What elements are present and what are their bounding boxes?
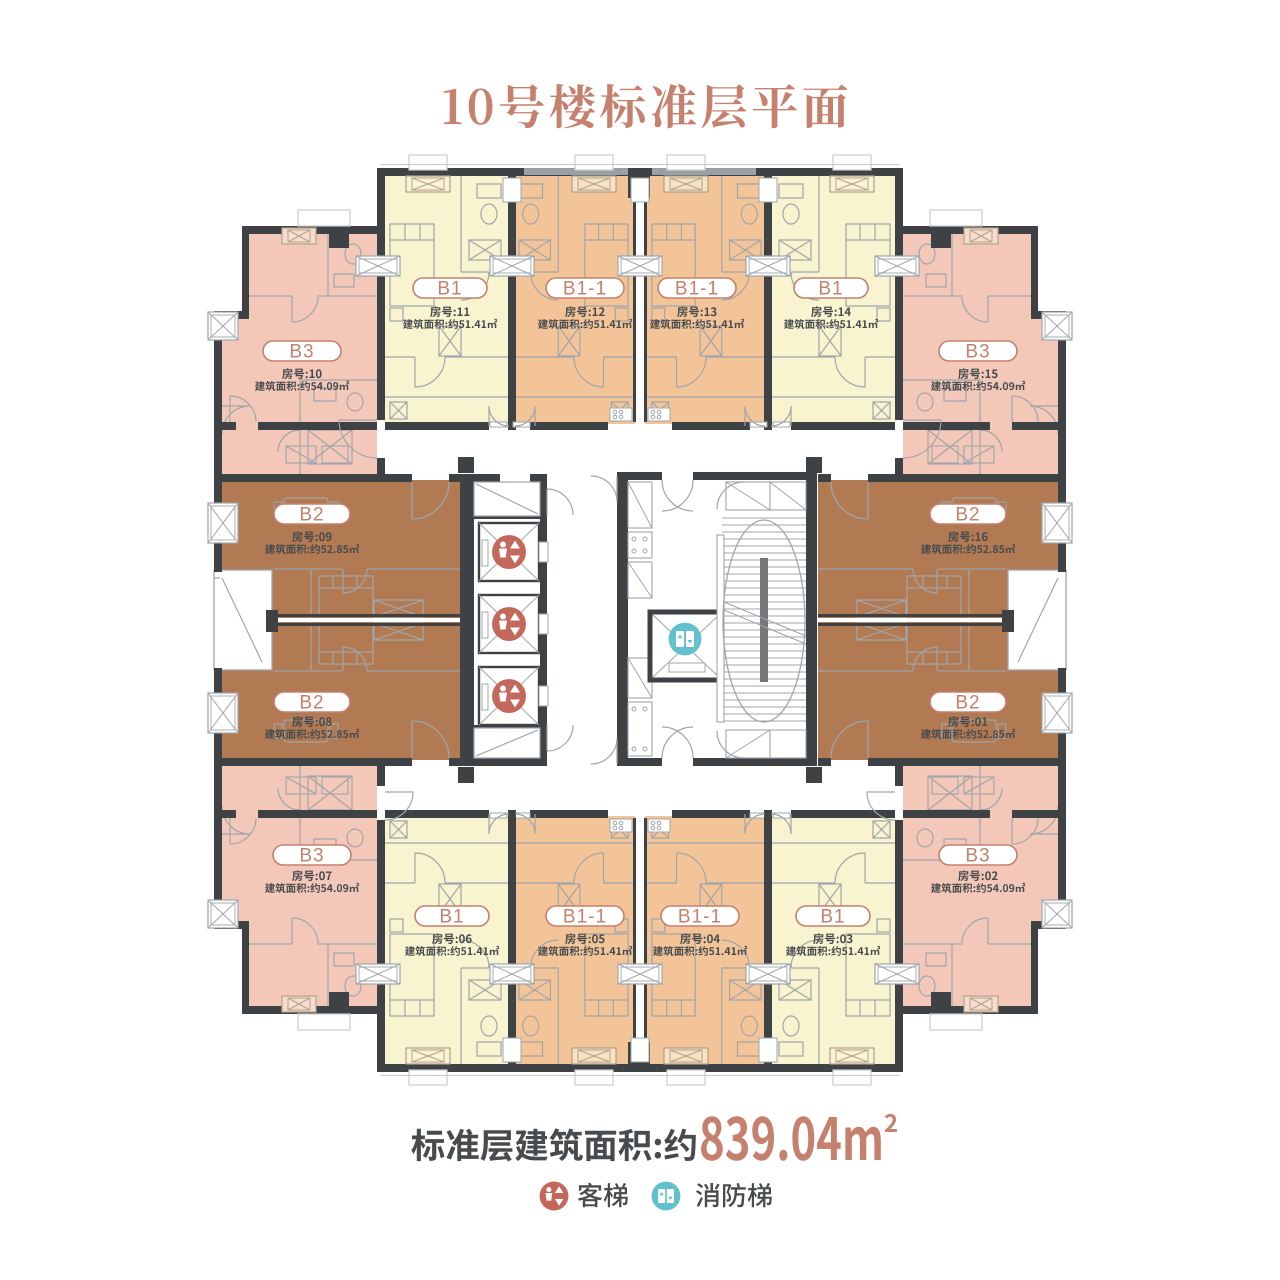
svg-text:B1: B1 (820, 907, 845, 928)
svg-text:B3: B3 (299, 846, 324, 867)
svg-text:B2: B2 (955, 693, 980, 714)
svg-text:B3: B3 (965, 342, 990, 363)
svg-text:B2: B2 (299, 693, 324, 714)
svg-text:B1-1: B1-1 (678, 907, 722, 928)
svg-text:B3: B3 (965, 846, 990, 867)
svg-text:B1-1: B1-1 (563, 907, 607, 928)
svg-text:B2: B2 (299, 505, 324, 526)
svg-text:B3: B3 (289, 342, 314, 363)
svg-text:B1: B1 (439, 907, 464, 928)
svg-text:B1-1: B1-1 (563, 279, 607, 300)
svg-text:B1: B1 (818, 279, 843, 300)
svg-text:B2: B2 (955, 505, 980, 526)
svg-text:B1: B1 (437, 279, 462, 300)
svg-text:B1-1: B1-1 (675, 279, 719, 300)
